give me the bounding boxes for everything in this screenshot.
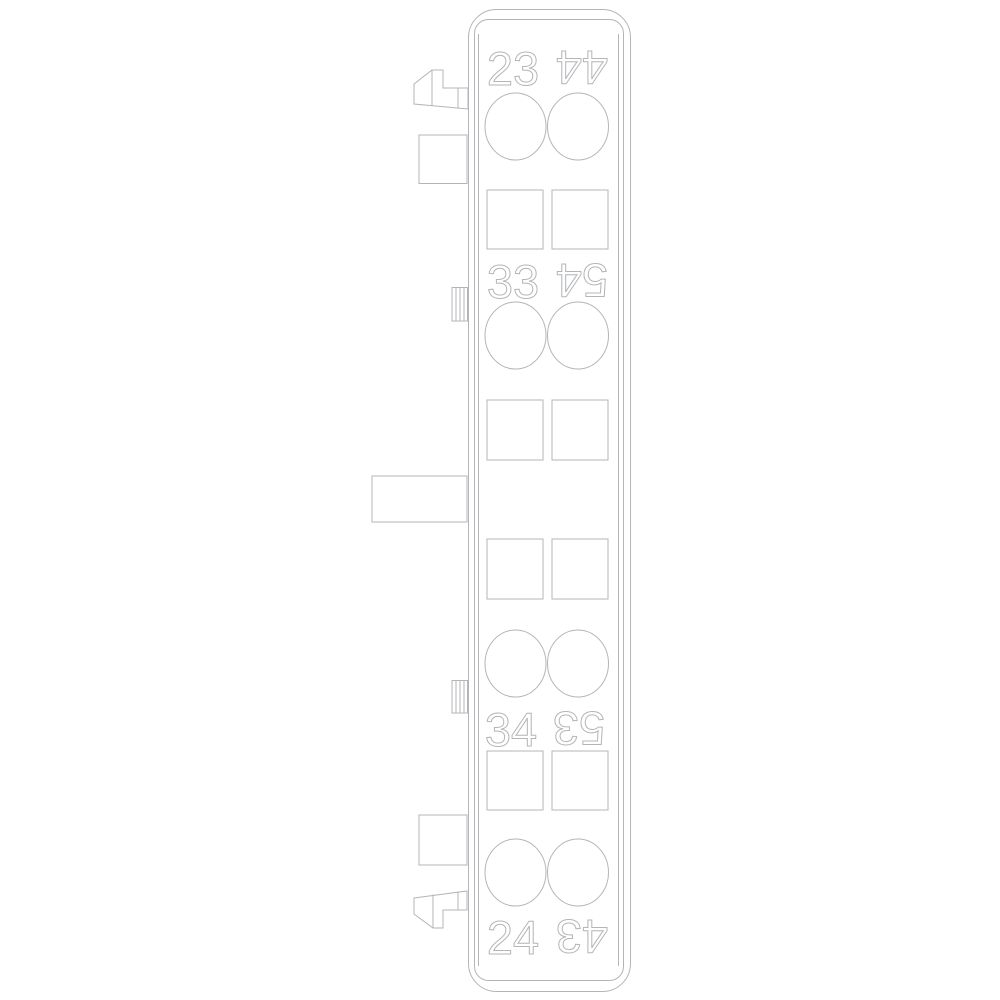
mounting-lug-top [419,135,467,184]
screw-hole [485,839,546,906]
ribbed-tab-upper-ribs [456,288,464,322]
mounting-arm-middle [372,476,467,522]
screw-hole [548,302,609,369]
wire-cavity [552,190,608,249]
wire-cavity [487,539,543,599]
terminal-label-53: 53 [553,702,605,755]
screw-hole [548,93,609,160]
wire-cavity [552,539,608,599]
technical-drawing-canvas: 23 44 33 54 34 53 [0,0,1000,1000]
terminal-row-2: 33 54 [485,254,609,460]
screw-hole [548,630,609,697]
terminal-label-24: 24 [487,911,539,964]
screw-hole [485,93,546,160]
terminal-label-33: 33 [487,255,539,308]
wire-cavity [552,400,608,460]
screw-hole [485,630,546,697]
housing-inner-outline [475,20,624,981]
mounting-hook-top [414,70,468,109]
terminal-label-34: 34 [485,703,537,756]
wire-cavity [487,751,543,810]
terminal-row-3: 34 53 [485,539,609,756]
contact-block-drawing: 23 44 33 54 34 53 [0,0,1000,1000]
mounting-lug-bottom [419,815,467,865]
screw-hole [548,839,609,906]
mounting-hook-bottom [414,891,467,928]
terminal-label-23: 23 [487,42,539,95]
terminal-row-1: 23 44 [485,41,609,249]
housing-body [469,10,631,992]
terminal-label-44: 44 [556,41,608,94]
wire-cavity [487,400,543,460]
mounting-features [372,70,468,928]
terminal-row-4: 24 43 [485,751,609,964]
housing-outer-outline [469,10,631,992]
ribbed-tab-lower-ribs [456,681,464,714]
wire-cavity [552,751,608,810]
terminal-label-54: 54 [556,254,608,307]
screw-hole [485,302,546,369]
mounting-hook-top-edge-lines [432,70,458,108]
wire-cavity [487,190,543,249]
terminal-label-43: 43 [556,910,608,963]
